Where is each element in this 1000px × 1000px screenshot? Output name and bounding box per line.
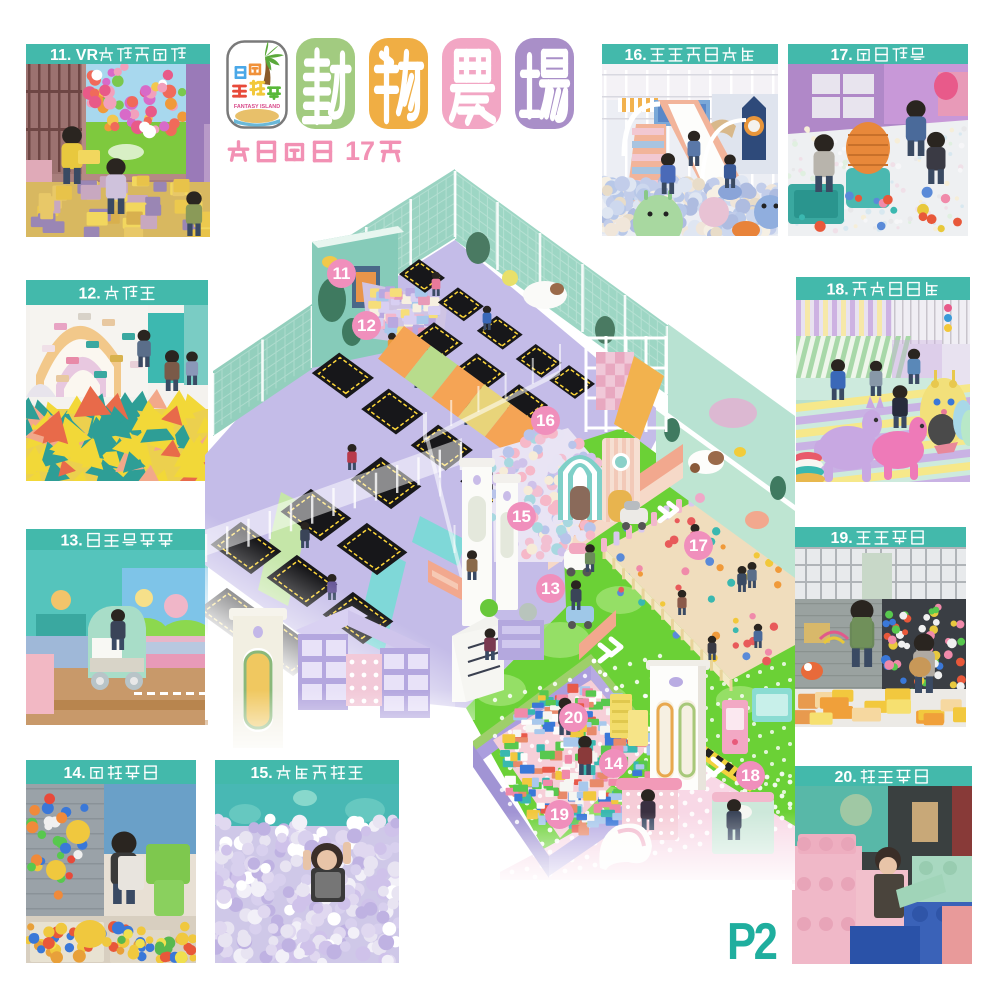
svg-text:11. VR: 11. VR	[50, 47, 98, 64]
svg-text:19.: 19.	[831, 530, 853, 547]
svg-text:16.: 16.	[625, 47, 647, 64]
svg-text:14.: 14.	[64, 765, 86, 782]
svg-text:20.: 20.	[835, 769, 857, 786]
svg-text:18.: 18.	[827, 281, 849, 298]
svg-text:FANTASY ISLAND: FANTASY ISLAND	[234, 104, 280, 110]
svg-text:13.: 13.	[61, 532, 83, 549]
svg-text:12.: 12.	[79, 285, 101, 302]
svg-text:17.: 17.	[831, 47, 853, 64]
